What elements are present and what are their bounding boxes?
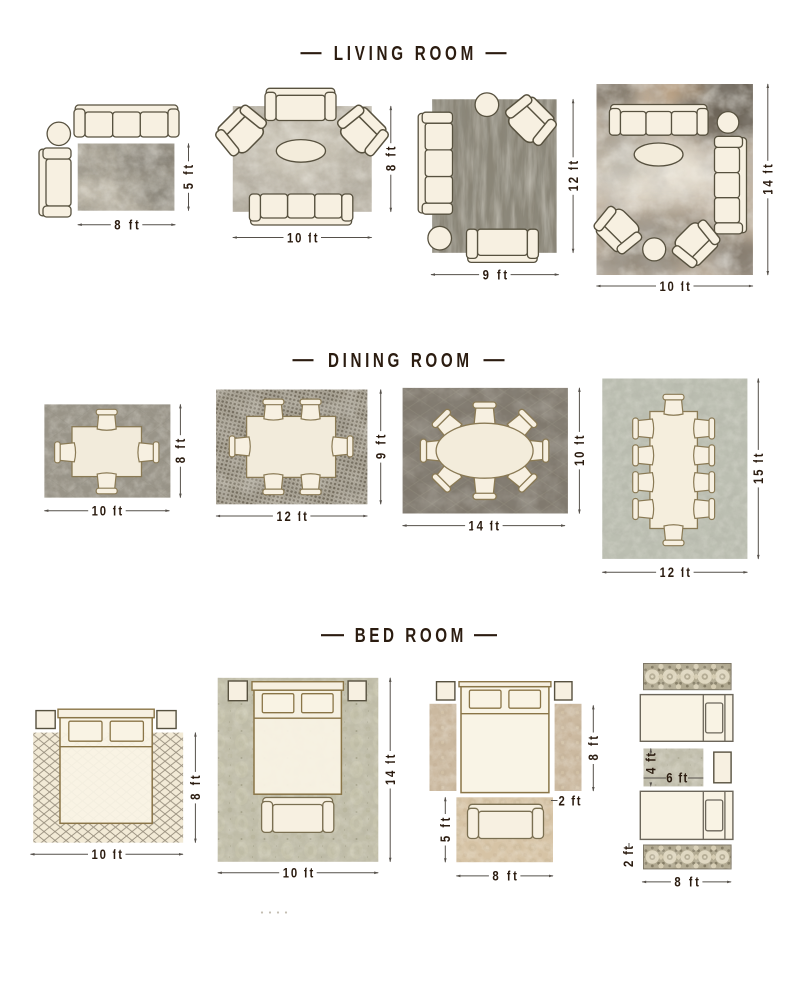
svg-text:BED ROOM: BED ROOM (355, 624, 464, 647)
svg-text:2 ft: 2 ft (621, 846, 636, 867)
svg-text:2 ft: 2 ft (558, 793, 580, 808)
svg-text:4 ft: 4 ft (643, 753, 658, 774)
svg-text:6 ft: 6 ft (666, 771, 687, 786)
